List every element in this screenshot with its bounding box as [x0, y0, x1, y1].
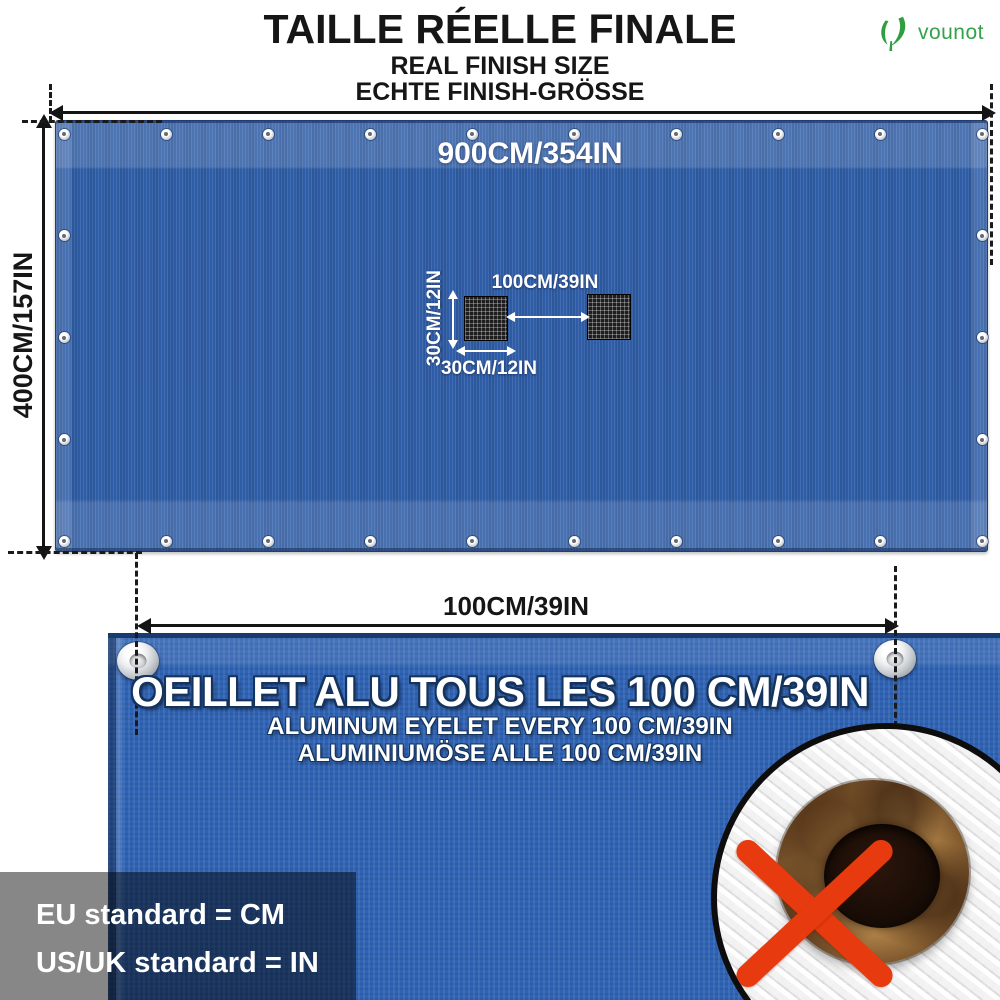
eyelet-small — [59, 129, 70, 140]
eyelet-small — [977, 129, 988, 140]
eyelet-small — [263, 129, 274, 140]
eyelet-small — [569, 536, 580, 547]
brand-name: vounot — [918, 21, 984, 45]
page-subtitle-en: REAL FINISH SIZE — [0, 52, 1000, 81]
patch-width-arrow — [464, 350, 508, 352]
eyelet-small — [977, 332, 988, 343]
repair-patch-right — [587, 294, 631, 340]
eyelet-small — [59, 536, 70, 547]
guide-dash-top-right — [990, 84, 993, 265]
eyelet-small — [875, 129, 886, 140]
eyelet-headline-en: ALUMINUM EYELET EVERY 100 CM/39IN — [100, 713, 900, 741]
eyelet-small — [161, 536, 172, 547]
patch-gap-label: 100CM/39IN — [465, 272, 625, 294]
page-subtitle-de: ECHTE FINISH-GRÖSSE — [0, 78, 1000, 107]
leaf-logo-icon — [875, 14, 911, 52]
product-infographic: TAILLE RÉELLE FINALE REAL FINISH SIZE EC… — [0, 0, 1000, 1000]
eyelet-small — [263, 536, 274, 547]
eyelet-small — [773, 536, 784, 547]
height-dimension-label: 400CM/157IN — [8, 235, 36, 435]
eyelet-spacing-label: 100CM/39IN — [366, 591, 666, 622]
standard-eu: EU standard = CM — [36, 899, 285, 932]
guide-dash-bottom-edge — [8, 551, 142, 554]
eyelet-small — [773, 129, 784, 140]
brand-logo: vounot — [875, 14, 984, 52]
eyelet-small — [875, 536, 886, 547]
page-title: TAILLE RÉELLE FINALE — [0, 6, 1000, 53]
eyelet-spacing-arrow — [150, 624, 886, 627]
width-dimension-arrow — [62, 111, 983, 114]
eyelet-small — [977, 434, 988, 445]
eyelet-small — [59, 332, 70, 343]
patch-gap-arrow — [514, 316, 582, 318]
eyelet-small — [977, 536, 988, 547]
guide-dash-top-edge — [22, 120, 162, 123]
eyelet-small — [671, 536, 682, 547]
eyelet-small — [161, 129, 172, 140]
standard-usuk: US/UK standard = IN — [36, 947, 319, 980]
tarp-front-view — [55, 120, 988, 552]
eyelet-small — [365, 536, 376, 547]
eyelet-small — [59, 434, 70, 445]
eyelet-small — [977, 230, 988, 241]
standards-overlay: EU standard = CM US/UK standard = IN — [0, 872, 356, 1000]
patch-height-arrow — [452, 298, 454, 341]
patch-width-label: 30CM/12IN — [409, 358, 569, 380]
height-dimension-arrow — [42, 127, 45, 547]
repair-patch-left — [464, 296, 508, 341]
width-dimension-label: 900CM/354IN — [380, 137, 680, 171]
eyelet-small — [467, 536, 478, 547]
eyelet-small — [365, 129, 376, 140]
eyelet-small — [59, 230, 70, 241]
eyelet-headline-fr: OEILLET ALU TOUS LES 100 CM/39IN — [100, 668, 900, 716]
